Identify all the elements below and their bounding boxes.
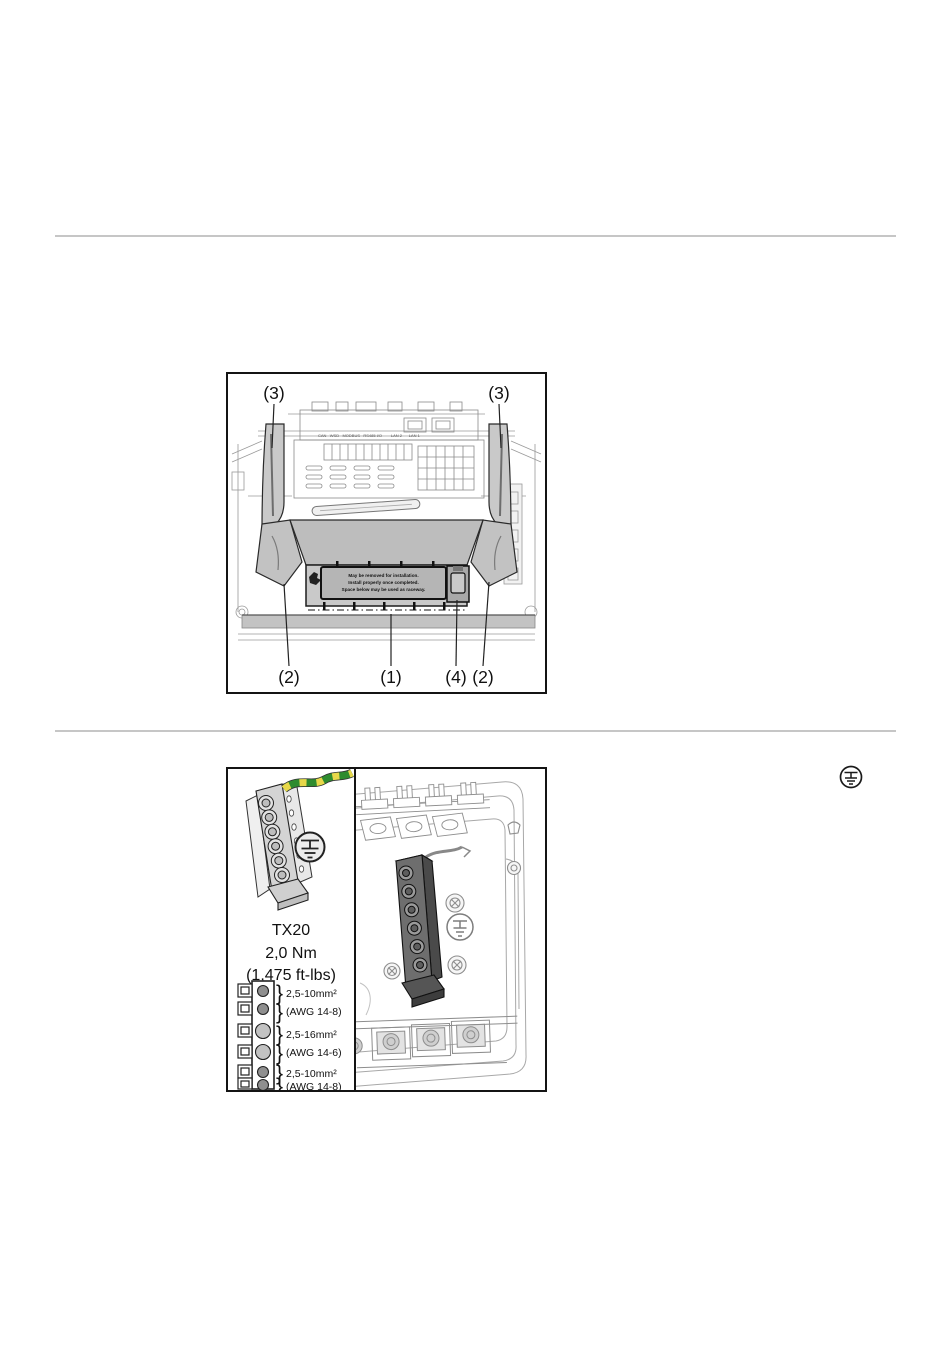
bottom-terminals bbox=[356, 1016, 519, 1068]
busbar-installed-drawing bbox=[356, 769, 545, 1090]
cover-label-line2: Install properly once completed. bbox=[348, 580, 418, 585]
cover-insert bbox=[447, 566, 469, 602]
terminal-block-front-view bbox=[238, 981, 274, 1090]
pe-symbol-embossed bbox=[447, 914, 473, 940]
callout-3-left: (3) bbox=[263, 383, 284, 403]
busbar-installed-panel bbox=[356, 769, 545, 1090]
callout-4: (4) bbox=[445, 667, 466, 687]
spec-1-metric: 2,5-10mm² bbox=[286, 988, 337, 1000]
cover-removal-drawing: CAN WSD MODBUS RS485 I/O LAN 2 LAN 1 bbox=[228, 374, 545, 692]
callout-2-left: (2) bbox=[278, 667, 299, 687]
torque-metric-label: 2,0 Nm bbox=[265, 945, 317, 962]
ac-terminals bbox=[356, 782, 491, 841]
spec-3-awg: (AWG 14-8) bbox=[286, 1081, 342, 1090]
cover-label-line1: May be removed for installation. bbox=[348, 573, 418, 578]
protective-earth-symbol bbox=[838, 764, 864, 790]
terminal-plateaus bbox=[360, 813, 467, 841]
pe-symbol-detail bbox=[296, 833, 325, 862]
interior-wire-line bbox=[360, 983, 370, 1015]
spec-2-awg: (AWG 14-6) bbox=[286, 1047, 342, 1059]
manual-page: CAN WSD MODBUS RS485 I/O LAN 2 LAN 1 bbox=[0, 0, 950, 1369]
brace-3b: } bbox=[276, 1075, 283, 1090]
spec-2-metric: 2,5-16mm² bbox=[286, 1029, 337, 1041]
busbar-detail-panel: TX20 2,0 Nm (1,475 ft-lbs) bbox=[228, 769, 356, 1090]
busbar-detail-drawing: TX20 2,0 Nm (1,475 ft-lbs) bbox=[228, 769, 354, 1090]
cover-label-line3: Space below may be used as raceway. bbox=[342, 587, 426, 592]
mounted-busbar bbox=[396, 847, 470, 1007]
protective-earth-icon bbox=[838, 764, 864, 790]
section-divider-middle bbox=[55, 730, 896, 732]
callout-1: (1) bbox=[380, 667, 401, 687]
figure-grounding-busbar-diagram: TX20 2,0 Nm (1,475 ft-lbs) bbox=[226, 767, 547, 1092]
antenna bbox=[312, 499, 420, 516]
callout-3-right: (3) bbox=[488, 383, 509, 403]
callout-2-right: (2) bbox=[472, 667, 493, 687]
vent-slots bbox=[268, 466, 502, 488]
tool-size-label: TX20 bbox=[272, 922, 310, 939]
brace-1b: } bbox=[276, 1001, 283, 1024]
wire-spec-annotations: } } } } } } 2,5-10mm² (AWG 14-8) 2,5-16m… bbox=[276, 982, 342, 1090]
ground-wire bbox=[284, 773, 352, 789]
figure-cover-removal-diagram: CAN WSD MODBUS RS485 I/O LAN 2 LAN 1 bbox=[226, 372, 547, 694]
terminal-clamps bbox=[238, 984, 252, 1089]
spec-1-awg: (AWG 14-8) bbox=[286, 1006, 342, 1018]
cover-top-face bbox=[290, 520, 483, 565]
port-labels: CAN WSD MODBUS RS485 I/O LAN 2 LAN 1 bbox=[318, 433, 421, 438]
section-divider-top bbox=[55, 235, 896, 237]
spec-3-metric: 2,5-10mm² bbox=[286, 1068, 337, 1080]
terminal-pins bbox=[361, 782, 484, 809]
